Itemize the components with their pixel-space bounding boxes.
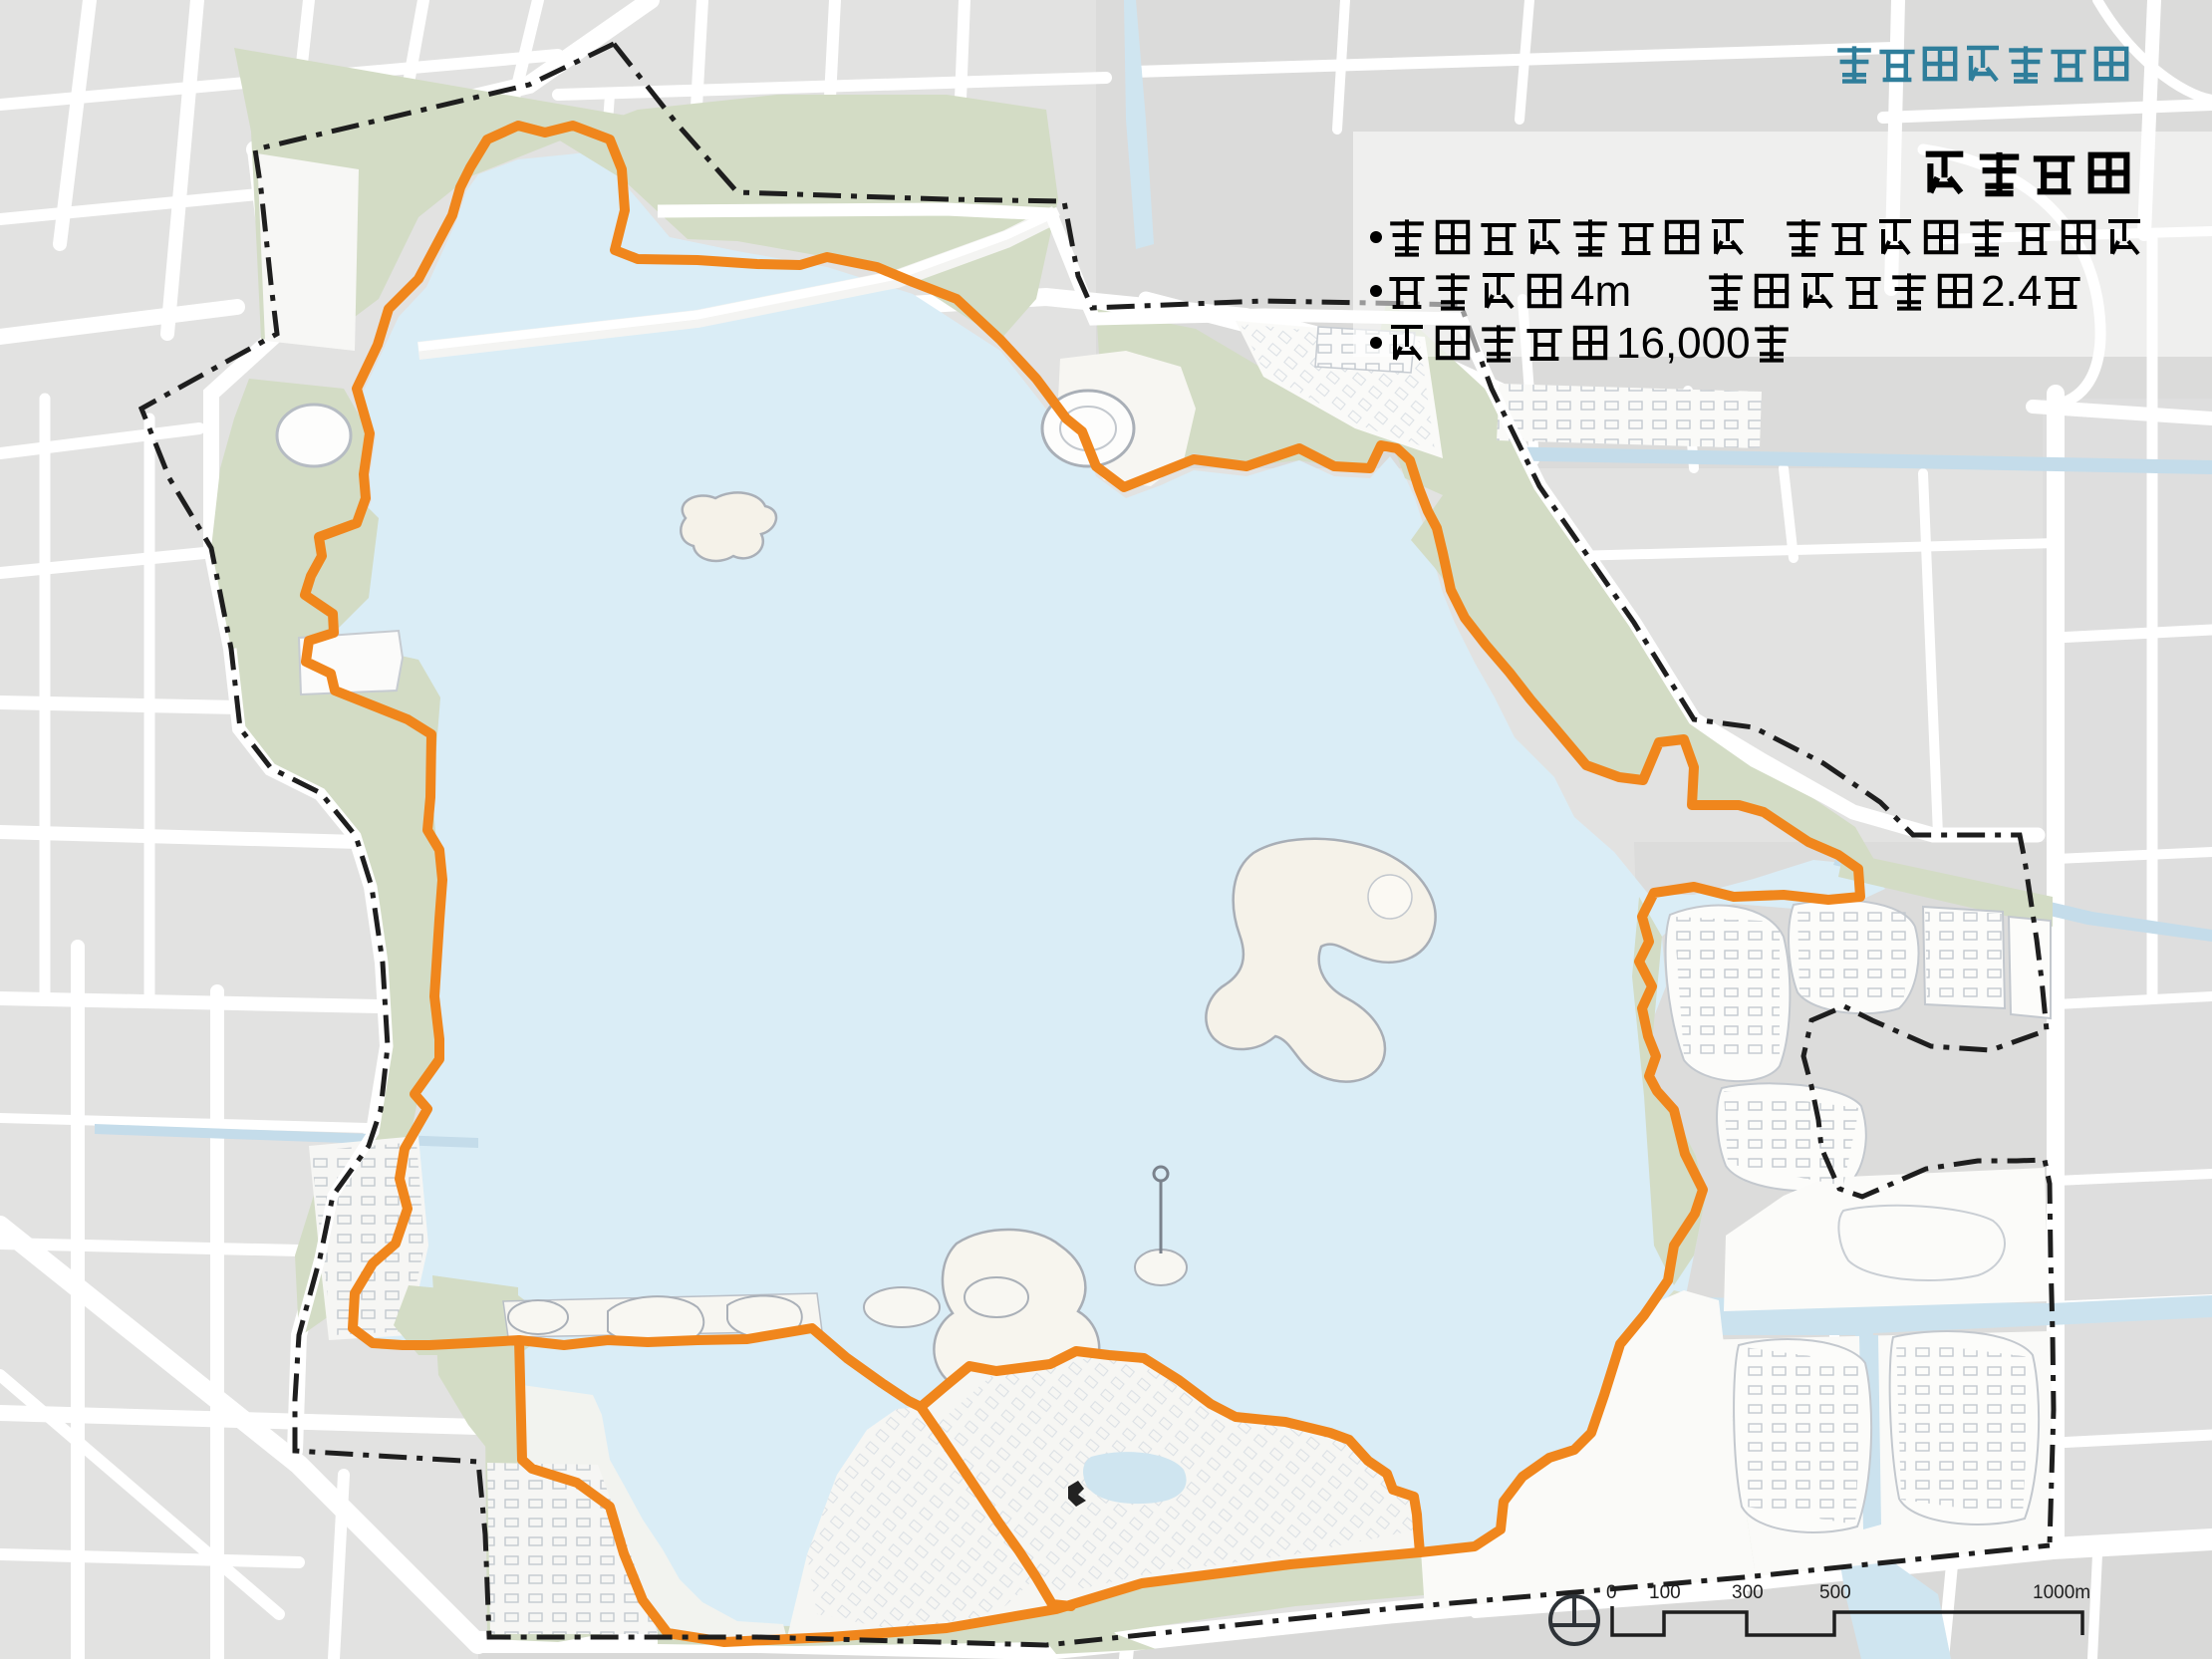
- svg-text:300: 300: [1732, 1582, 1764, 1603]
- svg-text:1000m: 1000m: [2033, 1582, 2090, 1603]
- svg-text:500: 500: [1819, 1582, 1851, 1603]
- svg-text:4m: 4m: [1570, 267, 1631, 316]
- svg-text:16,000: 16,000: [1616, 319, 1751, 368]
- svg-text:100: 100: [1649, 1582, 1681, 1603]
- svg-text:2.4: 2.4: [1981, 267, 2042, 316]
- svg-text:0: 0: [1606, 1582, 1617, 1603]
